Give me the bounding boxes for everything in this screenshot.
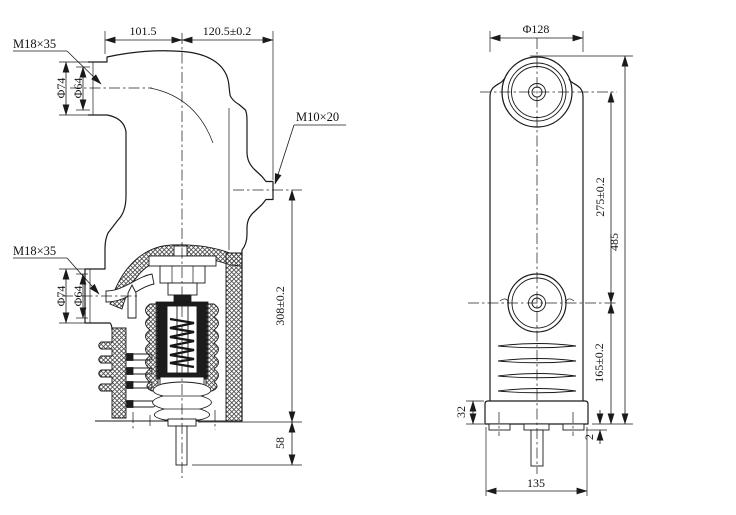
- fin-column-hatch: [99, 328, 126, 418]
- front-foot-left: [489, 424, 510, 430]
- arm-bore-curve: [150, 88, 213, 143]
- upper-thread-label: M18×35: [13, 37, 56, 51]
- leader-m10: [275, 125, 294, 184]
- interrupter-corrugation-right: [206, 304, 219, 391]
- dim-32-label: 32: [454, 406, 468, 418]
- stem-rod: [176, 426, 187, 465]
- front-body-right-edge: [569, 79, 583, 401]
- dim-165-label: 165±0.2: [592, 343, 606, 383]
- interrupter-corrugation-left: [146, 304, 159, 391]
- upper-d64-label: Φ64: [71, 78, 85, 99]
- lower-d64-label: Φ64: [71, 286, 85, 307]
- guide-pin: [128, 285, 136, 318]
- dim-308-label: 308±0.2: [273, 286, 287, 326]
- dim-135-label: 135: [527, 476, 545, 490]
- front-stem-collar: [524, 424, 549, 430]
- stud-thread-label: M10×20: [296, 110, 339, 124]
- engineering-drawing: 101.5 120.5±0.2 M18×35 Φ74 Φ64 M10×20 M1…: [0, 0, 736, 515]
- dim-485-label: 485: [607, 233, 621, 251]
- front-view: [468, 38, 617, 474]
- dim-120-5-label: 120.5±0.2: [203, 24, 252, 38]
- drawing-canvas: 101.5 120.5±0.2 M18×35 Φ74 Φ64 M10×20 M1…: [0, 0, 736, 515]
- front-base-flange: [485, 401, 588, 424]
- front-body-left-edge: [490, 79, 504, 401]
- dim-275-label: 275±0.2: [593, 177, 607, 217]
- dim-58-label: 58: [273, 437, 287, 449]
- front-foot-right: [563, 424, 584, 430]
- upper-d74-label: Φ74: [54, 78, 68, 99]
- lower-d74-label: Φ74: [54, 286, 68, 307]
- side-view: [62, 33, 302, 478]
- lower-thread-label: M18×35: [13, 244, 56, 258]
- dim-d128-label: Φ128: [523, 22, 550, 36]
- dim-2-label: 2: [582, 434, 596, 440]
- right-wall-hatch: [226, 253, 242, 421]
- dim-101-5-label: 101.5: [130, 24, 157, 38]
